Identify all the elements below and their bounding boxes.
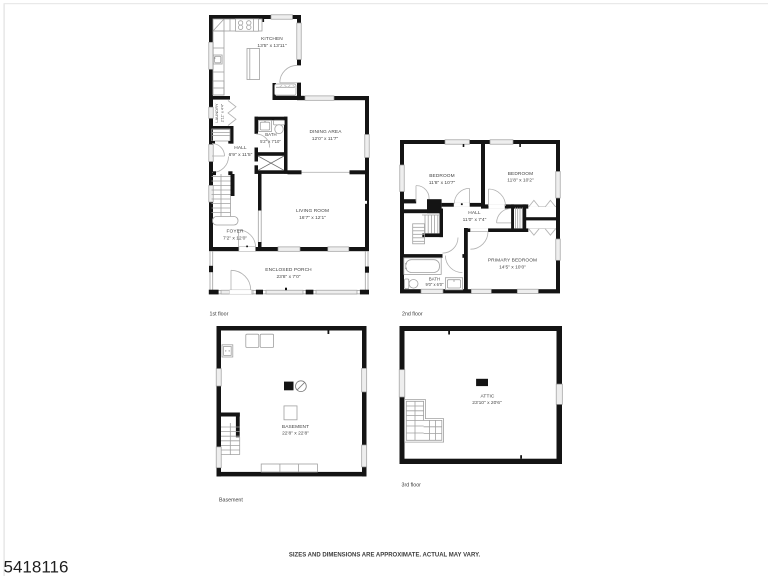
svg-text:BEDROOM: BEDROOM: [429, 173, 455, 179]
svg-text:11'8" x 10'7": 11'8" x 10'7": [429, 180, 456, 186]
svg-text:5418116: 5418116: [4, 558, 69, 576]
svg-text:LAUNDRY: LAUNDRY: [214, 103, 219, 123]
svg-text:23'8" x 7'0": 23'8" x 7'0": [276, 274, 300, 280]
svg-text:6'9" x 11'5": 6'9" x 11'5": [229, 152, 253, 158]
svg-text:2'11" x 4'4": 2'11" x 4'4": [221, 103, 225, 122]
svg-text:Basement: Basement: [219, 497, 243, 503]
svg-text:ENCLOSED PORCH: ENCLOSED PORCH: [265, 267, 312, 273]
svg-text:PRIMARY BEDROOM: PRIMARY BEDROOM: [488, 258, 537, 264]
svg-text:3rd floor: 3rd floor: [402, 483, 422, 489]
svg-text:14'5" x 10'0": 14'5" x 10'0": [499, 265, 526, 271]
svg-text:DINING AREA: DINING AREA: [309, 129, 342, 135]
svg-text:ATTIC: ATTIC: [480, 394, 494, 400]
svg-text:HALL: HALL: [468, 210, 481, 216]
svg-text:KITCHEN: KITCHEN: [261, 36, 283, 42]
svg-text:BATH: BATH: [265, 132, 277, 137]
svg-text:HALL: HALL: [234, 145, 247, 151]
svg-text:23'10" x 20'6": 23'10" x 20'6": [472, 400, 502, 406]
svg-text:SIZES AND DIMENSIONS ARE APPRO: SIZES AND DIMENSIONS ARE APPROXIMATE. AC…: [289, 553, 481, 559]
svg-text:BASEMENT: BASEMENT: [282, 424, 309, 430]
svg-text:11'0" x 7'4": 11'0" x 7'4": [463, 217, 487, 223]
svg-text:13'5" x 13'11": 13'5" x 13'11": [257, 43, 286, 49]
svg-text:1st floor: 1st floor: [210, 312, 229, 318]
svg-text:16'7" x 12'1": 16'7" x 12'1": [299, 215, 326, 221]
svg-text:BEDROOM: BEDROOM: [508, 171, 534, 177]
svg-text:2nd floor: 2nd floor: [402, 312, 423, 318]
svg-text:FOYER: FOYER: [226, 229, 243, 235]
svg-text:9'0" x 6'0": 9'0" x 6'0": [426, 282, 444, 287]
svg-text:11'8" x 10'2": 11'8" x 10'2": [507, 178, 534, 184]
svg-text:12'0" x 11'7": 12'0" x 11'7": [312, 136, 339, 142]
svg-text:22'8" x 22'8": 22'8" x 22'8": [282, 431, 309, 437]
svg-text:5'2" x 7'10": 5'2" x 7'10": [260, 139, 281, 144]
svg-text:7'2" x 12'0": 7'2" x 12'0": [223, 236, 247, 242]
svg-text:LIVING ROOM: LIVING ROOM: [296, 208, 329, 214]
svg-text:BATH: BATH: [429, 277, 440, 282]
